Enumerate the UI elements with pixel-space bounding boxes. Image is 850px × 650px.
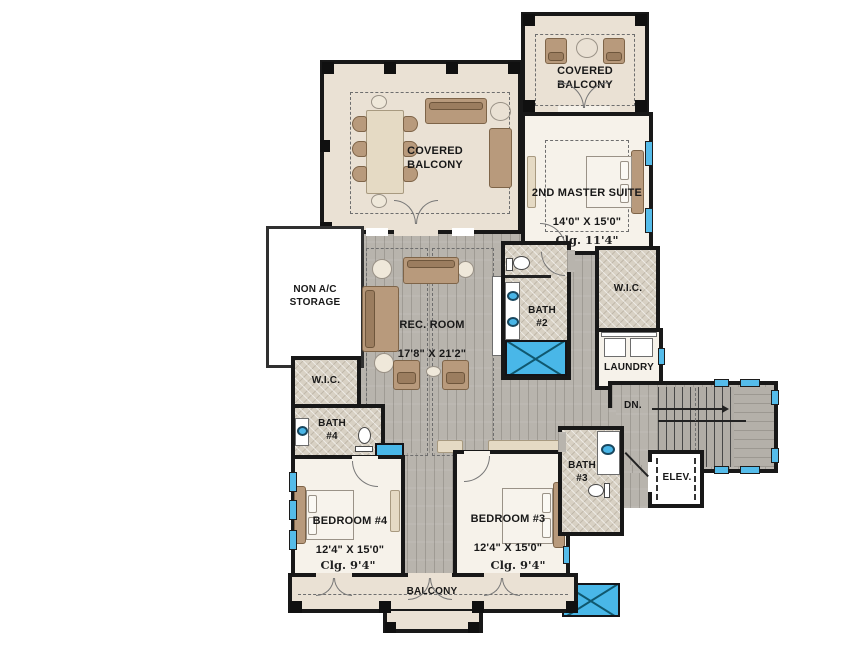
sink-icon [601, 444, 615, 455]
wall-post [508, 62, 520, 74]
stair-landing [734, 387, 774, 467]
toilet-icon [604, 483, 610, 498]
room-label: BATH #3 [560, 460, 604, 485]
wall-post [379, 601, 391, 613]
door-opening [648, 462, 654, 492]
room-dims: 14'0" X 15'0" [553, 216, 621, 228]
room-dims: 12'4" X 15'0" [474, 542, 542, 554]
door-opening [394, 224, 438, 236]
sink-icon [507, 291, 519, 301]
wall-post [384, 62, 396, 74]
round-table-icon [576, 38, 598, 58]
ottoman-icon [426, 366, 441, 377]
window [740, 466, 760, 474]
window [645, 141, 653, 166]
chair-icon [352, 141, 367, 157]
armchair-seat-icon [397, 372, 416, 384]
chair-icon [403, 116, 418, 132]
window [658, 348, 665, 365]
window [771, 448, 779, 463]
sink-icon [507, 317, 519, 327]
window [289, 472, 297, 492]
toilet-icon [358, 427, 371, 444]
room-label: COVERED BALCONY [395, 144, 475, 173]
toilet-icon [355, 446, 373, 452]
room-label: LAUNDRY [599, 362, 659, 375]
washer-icon [604, 338, 626, 357]
room-name: 2ND MASTER SUITE [532, 187, 642, 199]
side-table-icon [457, 261, 474, 278]
armchair-seat-icon [606, 52, 622, 61]
room-name: BEDROOM #4 [313, 515, 388, 527]
room-label: NON A/C STORAGE [283, 284, 347, 309]
sofa-back-icon [429, 102, 483, 110]
wall-post [635, 100, 647, 112]
room-label: BATH #4 [312, 418, 352, 443]
chair-icon [352, 166, 367, 182]
room-dims: 17'8" X 21'2" [398, 348, 466, 360]
wall-post [523, 100, 535, 112]
room-name: REC. ROOM [399, 319, 464, 331]
room-label: COVERED BALCONY [545, 64, 625, 93]
hall-floor [398, 453, 460, 579]
room-dims: 12'4" X 15'0" [316, 544, 384, 556]
stair-arrow [652, 408, 722, 410]
room-label: W.I.C. [605, 283, 651, 296]
toilet-icon [506, 258, 513, 271]
ceiling-height-label: Clg. 9'4" [318, 558, 378, 572]
sofa-back-icon [407, 260, 455, 268]
sink-icon [297, 426, 308, 436]
window [289, 530, 297, 550]
window [645, 208, 653, 233]
room-label: REC. ROOM 17'8" X 21'2" [390, 304, 474, 361]
stair-divider [658, 420, 746, 422]
chair-icon [371, 194, 387, 208]
chair-icon [352, 116, 367, 132]
door-opening [558, 432, 566, 452]
window [740, 379, 760, 387]
wall-partition [505, 275, 551, 278]
room-label: ELEV. [656, 472, 698, 485]
armchair-seat-icon [548, 52, 564, 61]
toilet-icon [588, 484, 604, 497]
ceiling-height-label: Clg. 9'4" [488, 558, 548, 572]
chair-icon [371, 95, 387, 109]
room-label: W.I.C. [303, 375, 349, 388]
wall-post [472, 601, 484, 613]
window [771, 390, 779, 405]
dryer-icon [630, 338, 653, 357]
armchair-seat-icon [446, 372, 465, 384]
laundry-counter [601, 332, 657, 337]
wall-post [385, 622, 396, 633]
stair-arrow-head [722, 405, 729, 413]
room-label: 2ND MASTER SUITE 14'0" X 15'0" [527, 172, 647, 229]
sofa-back-icon [365, 290, 375, 348]
chaise-icon [489, 128, 512, 188]
wall-post [322, 62, 334, 74]
room-label: BEDROOM #4 12'4" X 15'0" [305, 500, 395, 557]
window [563, 546, 570, 564]
room-label: BATH #2 [522, 305, 562, 330]
window [714, 379, 729, 387]
wall-post [523, 14, 535, 26]
side-table-icon [372, 259, 392, 279]
wall-post [566, 601, 578, 613]
window-opening [452, 228, 474, 236]
door-opening [567, 250, 575, 272]
window-opening [366, 228, 388, 236]
wall-post [446, 62, 458, 74]
wall-post [635, 14, 647, 26]
window [289, 500, 297, 520]
room-name: BEDROOM #3 [471, 513, 546, 525]
room-label: BEDROOM #3 12'4" X 15'0" [463, 498, 553, 555]
floor-plan: COVERED BALCONY 2ND MASTER SUITE 14'0" X… [0, 0, 850, 650]
wall-post [290, 601, 302, 613]
bathtub-icon [505, 340, 567, 376]
stairs-down-label: DN. [624, 400, 654, 413]
window [714, 466, 729, 474]
round-table-icon [490, 102, 511, 121]
wall-post [468, 622, 479, 633]
wall-post [320, 140, 330, 152]
toilet-icon [513, 256, 530, 270]
